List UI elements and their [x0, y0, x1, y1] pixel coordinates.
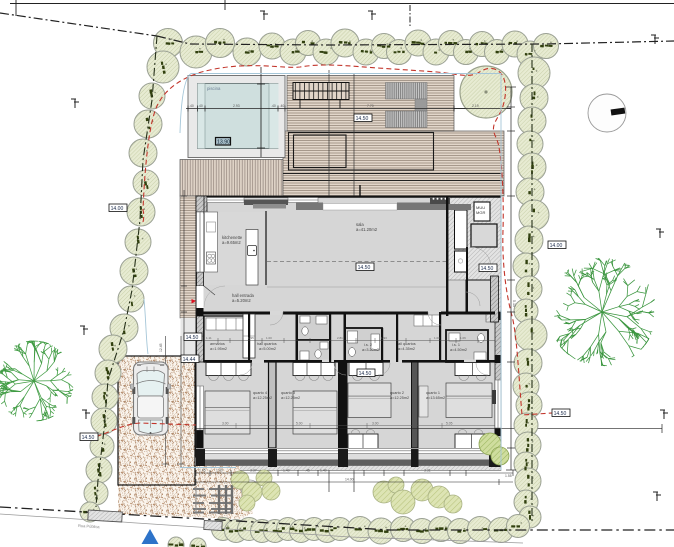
svg-text:2.19: 2.19 [472, 104, 479, 108]
svg-text:quarto 3: quarto 3 [281, 391, 295, 395]
svg-text:a=4.35m2: a=4.35m2 [398, 347, 415, 351]
svg-text:.40: .40 [271, 104, 276, 108]
svg-text:5.15: 5.15 [512, 300, 516, 307]
svg-text:a=9.65m2: a=9.65m2 [222, 240, 241, 245]
svg-text:3.00: 3.00 [372, 422, 379, 426]
svg-text:.45: .45 [305, 469, 310, 473]
svg-text:5.00: 5.00 [296, 422, 303, 426]
svg-text:14.50: 14.50 [358, 265, 371, 271]
svg-text:7.70: 7.70 [367, 104, 374, 108]
svg-text:quarto 4: quarto 4 [253, 391, 267, 395]
svg-text:a=5.00m2: a=5.00m2 [259, 347, 276, 351]
svg-text:14.50: 14.50 [481, 266, 494, 272]
svg-text:1.40: 1.40 [320, 469, 327, 473]
svg-text:quarto 2: quarto 2 [390, 391, 404, 395]
svg-text:14.50: 14.50 [186, 335, 199, 341]
svg-text:a=12.25m2: a=12.25m2 [390, 396, 409, 400]
svg-text:14.44: 14.44 [183, 357, 196, 363]
svg-text:piscina: piscina [207, 86, 221, 91]
svg-text:quarto 1: quarto 1 [426, 391, 440, 395]
svg-text:hall quartos: hall quartos [257, 342, 277, 346]
svg-text:2.93: 2.93 [233, 104, 240, 108]
svg-text:.40: .40 [198, 104, 203, 108]
svg-text:a=41.20m2: a=41.20m2 [356, 227, 378, 232]
svg-text:14.50: 14.50 [554, 411, 567, 417]
svg-text:i.s. 2: i.s. 2 [364, 343, 372, 347]
svg-text:a=4.50m2: a=4.50m2 [450, 348, 467, 352]
svg-text:14.00: 14.00 [111, 206, 124, 212]
svg-text:14.00: 14.00 [345, 478, 354, 482]
svg-text:.40: .40 [280, 104, 285, 108]
svg-text:1.95: 1.95 [248, 336, 254, 340]
svg-text:a=12.25m2: a=12.25m2 [253, 396, 272, 400]
svg-text:14.50: 14.50 [82, 435, 95, 441]
svg-text:1.40: 1.40 [216, 469, 223, 473]
svg-text:MGR: MGR [476, 210, 485, 215]
svg-text:12.45: 12.45 [159, 343, 163, 352]
svg-text:a=13.65m2: a=13.65m2 [426, 396, 445, 400]
svg-text:1.11: 1.11 [206, 336, 212, 340]
svg-text:14.00: 14.00 [550, 243, 563, 249]
svg-text:3.37: 3.37 [250, 469, 257, 473]
svg-text:a=12.25m2: a=12.25m2 [281, 396, 300, 400]
svg-text:14.50: 14.50 [359, 371, 372, 377]
svg-text:1.40: 1.40 [283, 469, 290, 473]
svg-text:5.05: 5.05 [446, 422, 453, 426]
svg-text:3.00: 3.00 [222, 422, 229, 426]
svg-text:1.55: 1.55 [505, 474, 512, 478]
svg-text:1.00: 1.00 [266, 336, 272, 340]
svg-text:.40: .40 [189, 104, 194, 108]
svg-text:1.45: 1.45 [199, 469, 206, 473]
svg-text:3.31: 3.31 [424, 469, 431, 473]
svg-text:armarios: armarios [210, 342, 225, 346]
svg-text:a=1.95m2: a=1.95m2 [210, 347, 227, 351]
svg-text:i.s. 1: i.s. 1 [452, 343, 460, 347]
svg-text:a=5.20m2: a=5.20m2 [232, 298, 251, 303]
svg-text:2.81: 2.81 [337, 336, 343, 340]
svg-text:13.90: 13.90 [217, 140, 230, 146]
svg-text:a=3.20m2: a=3.20m2 [362, 348, 379, 352]
svg-text:1.06: 1.06 [460, 336, 466, 340]
svg-text:1.93: 1.93 [381, 336, 387, 340]
svg-text:14.50: 14.50 [356, 116, 369, 122]
svg-text:1.00: 1.00 [434, 336, 440, 340]
